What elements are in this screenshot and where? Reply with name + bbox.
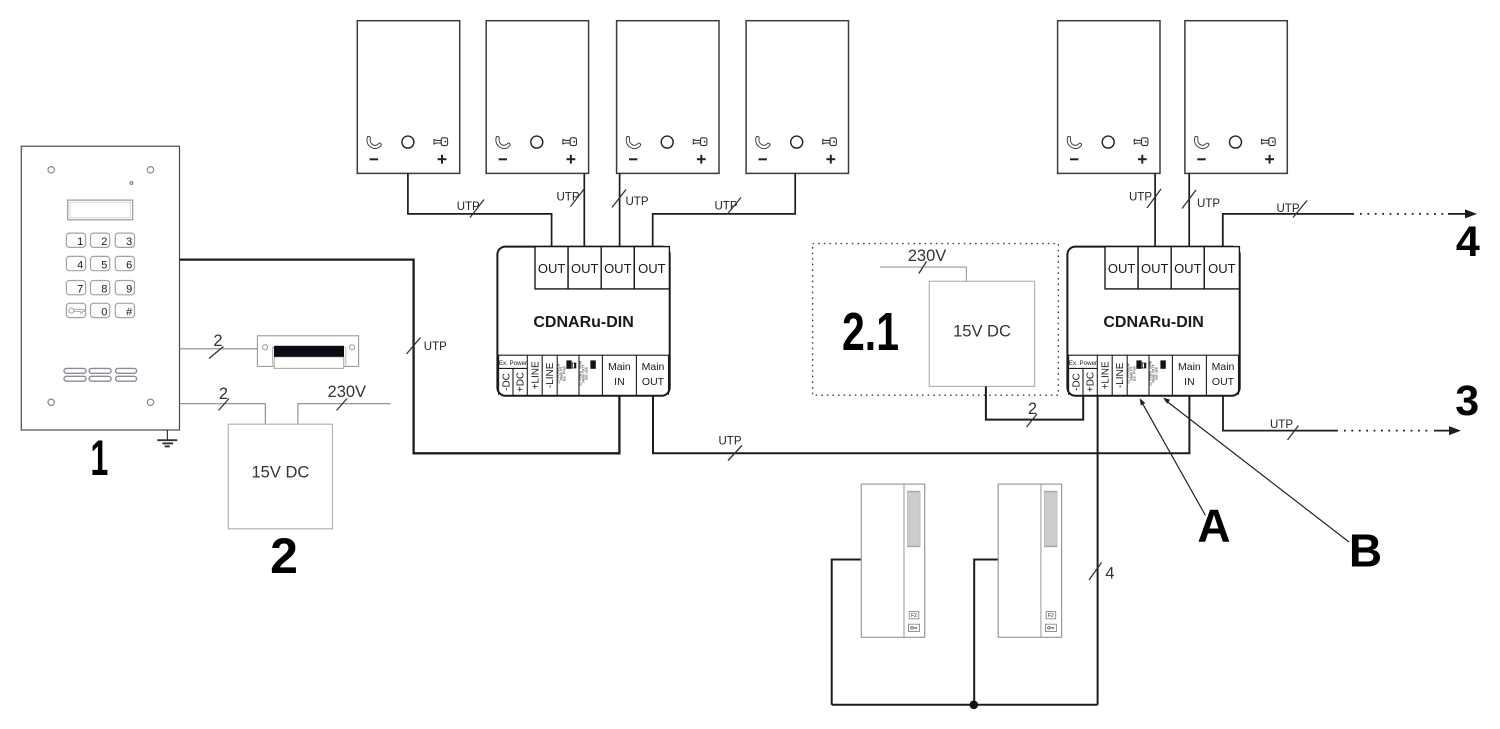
svg-text:#: #	[126, 306, 133, 318]
svg-text:UTP: UTP	[1129, 192, 1152, 204]
svg-text:UTP: UTP	[626, 196, 649, 208]
svg-text:15V DC: 15V DC	[252, 464, 310, 482]
svg-text:7: 7	[77, 284, 83, 296]
svg-text:230V: 230V	[908, 247, 947, 265]
svg-text:3: 3	[1455, 377, 1479, 425]
svg-text:1: 1	[90, 430, 108, 486]
svg-text:8: 8	[101, 284, 107, 296]
svg-text:2: 2	[101, 236, 107, 248]
svg-text:4: 4	[1105, 565, 1114, 583]
svg-text:UTP: UTP	[457, 201, 480, 213]
svg-text:UTP: UTP	[1197, 198, 1220, 210]
svg-text:UTP: UTP	[719, 436, 742, 448]
svg-text:5: 5	[101, 260, 107, 272]
svg-text:B: B	[1349, 525, 1382, 577]
svg-text:6: 6	[126, 260, 132, 272]
svg-text:UTP: UTP	[557, 192, 580, 204]
svg-text:3: 3	[126, 236, 132, 248]
svg-text:15V DC: 15V DC	[953, 323, 1011, 341]
svg-text:4: 4	[77, 260, 83, 272]
svg-text:A: A	[1197, 500, 1230, 552]
svg-text:2: 2	[213, 332, 222, 350]
svg-text:UTP: UTP	[1270, 419, 1293, 431]
svg-text:9: 9	[126, 284, 132, 296]
svg-text:1: 1	[77, 236, 83, 248]
svg-text:230V: 230V	[328, 383, 367, 401]
svg-text:2: 2	[270, 528, 298, 584]
svg-text:2.1: 2.1	[842, 302, 899, 362]
svg-text:UTP: UTP	[424, 341, 447, 353]
svg-text:0: 0	[101, 306, 107, 318]
svg-text:4: 4	[1456, 218, 1480, 266]
